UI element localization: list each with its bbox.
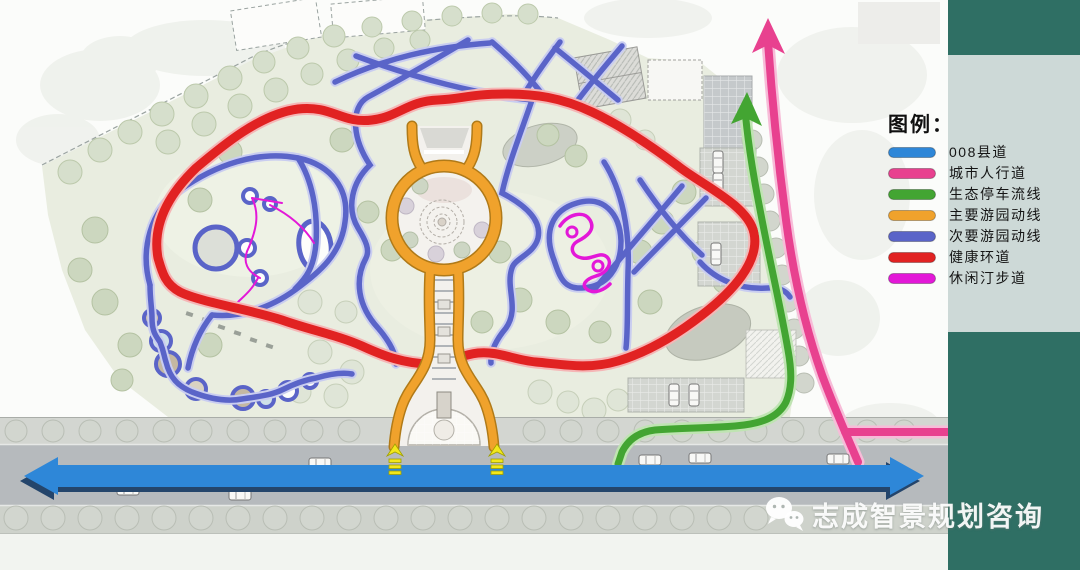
legend-label: 008县道	[949, 147, 1008, 158]
legend-swatch-city-walkway	[888, 168, 936, 179]
legend-label: 次要游园动线	[949, 231, 1042, 242]
entrance-monument	[437, 392, 451, 418]
legend-label: 生态停车流线	[949, 189, 1042, 200]
legend-swatch-county-road	[888, 147, 936, 158]
legend-row-county-road: 008县道	[888, 147, 1042, 158]
legend-row-health-loop: 健康环道	[888, 252, 1042, 263]
legend: 图例： 008县道 城市人行道 生态停车流线 主要游园动线 次要游园动线 健康环…	[888, 108, 1042, 294]
legend-row-eco-parking: 生态停车流线	[888, 189, 1042, 200]
masterplan-page: 图例： 008县道 城市人行道 生态停车流线 主要游园动线 次要游园动线 健康环…	[0, 0, 1080, 570]
legend-swatch-health-loop	[888, 252, 936, 263]
legend-label: 主要游园动线	[949, 210, 1042, 221]
legend-swatch-main-tour	[888, 210, 936, 221]
legend-label: 健康环道	[949, 252, 1011, 263]
offsite-block	[858, 2, 940, 44]
watermark-text: 志成智景规划咨询	[812, 495, 1044, 534]
legend-row-city-walkway: 城市人行道	[888, 168, 1042, 179]
legend-label: 城市人行道	[949, 168, 1027, 179]
watermark: 志成智景规划咨询	[764, 494, 1044, 534]
legend-swatch-stepping-path	[888, 273, 936, 284]
white-building	[648, 60, 702, 100]
legend-row-main-tour: 主要游园动线	[888, 210, 1042, 221]
legend-row-secondary-tour: 次要游园动线	[888, 231, 1042, 242]
legend-swatch-secondary-tour	[888, 231, 936, 242]
wechat-icon	[764, 494, 806, 534]
legend-title: 图例：	[888, 108, 1042, 137]
legend-label: 休闲汀步道	[949, 273, 1027, 284]
legend-row-stepping-path: 休闲汀步道	[888, 273, 1042, 284]
legend-swatch-eco-parking	[888, 189, 936, 200]
